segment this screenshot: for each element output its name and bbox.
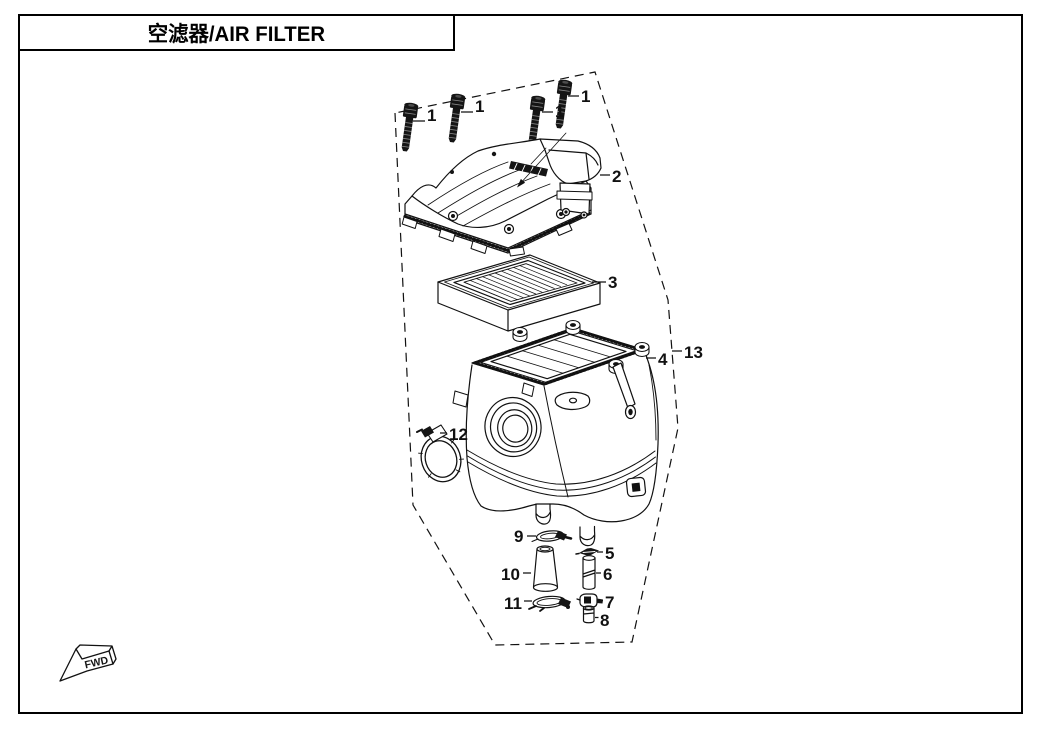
exploded-diagram: 1 1 1 1 2 3 4 13 12 9 5 10 6 11 7 8 FWD bbox=[0, 0, 1039, 735]
drain-tube-part-10 bbox=[534, 546, 558, 591]
cover-hole-dot bbox=[492, 152, 496, 156]
callout-3: 3 bbox=[608, 273, 617, 292]
callout-6: 6 bbox=[603, 565, 612, 584]
plug-part-8 bbox=[583, 606, 594, 623]
callout-12: 12 bbox=[449, 425, 468, 444]
clip-part-11 bbox=[529, 595, 571, 611]
drain-spout bbox=[536, 504, 551, 524]
callout-1: 1 bbox=[427, 106, 436, 125]
housing-side-boss bbox=[626, 477, 646, 497]
bolt-icon bbox=[445, 93, 466, 143]
tube-part-6 bbox=[583, 556, 595, 590]
callout-8: 8 bbox=[600, 611, 609, 630]
callout-1: 1 bbox=[555, 102, 564, 121]
callout-4: 4 bbox=[658, 350, 668, 369]
callout-13: 13 bbox=[684, 343, 703, 362]
callout-7: 7 bbox=[605, 593, 614, 612]
callout-9: 9 bbox=[514, 527, 523, 546]
clip-part-9 bbox=[532, 530, 571, 543]
filter-element-part bbox=[438, 255, 600, 331]
bolt-icon bbox=[398, 102, 419, 152]
callout-2: 2 bbox=[612, 167, 621, 186]
housing-part bbox=[453, 321, 658, 546]
callout-1: 1 bbox=[475, 97, 484, 116]
clip-part-5 bbox=[576, 548, 599, 556]
drain-spout bbox=[580, 527, 595, 546]
callout-10: 10 bbox=[501, 565, 520, 584]
catalog-page: 空滤器/AIR FILTER bbox=[0, 0, 1039, 735]
bolt-icon bbox=[525, 95, 546, 145]
cover-hole-dot bbox=[450, 170, 454, 174]
fwd-arrow: FWD bbox=[60, 645, 116, 681]
callout-5: 5 bbox=[605, 544, 614, 563]
small-parts bbox=[529, 530, 603, 623]
cover-part bbox=[402, 133, 601, 256]
callout-1: 1 bbox=[581, 87, 590, 106]
callout-11: 11 bbox=[504, 594, 522, 613]
